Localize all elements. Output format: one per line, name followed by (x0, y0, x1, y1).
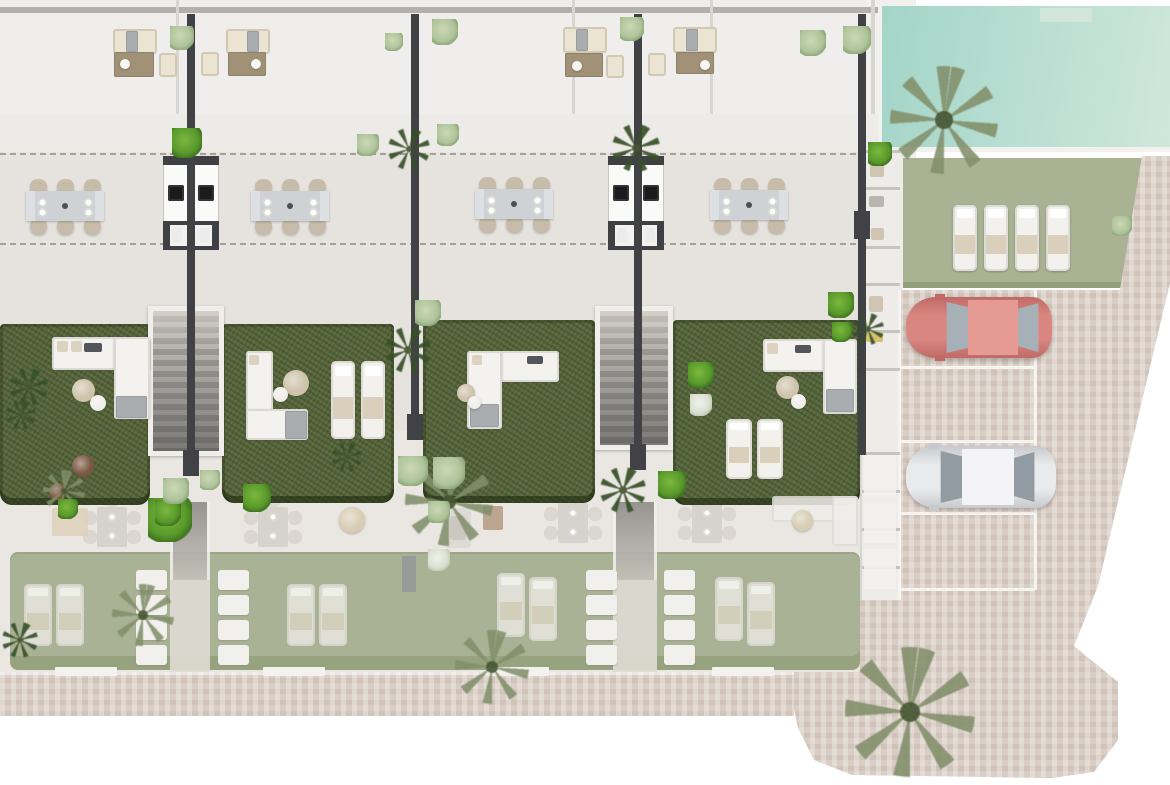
sink (645, 228, 655, 242)
planter-step (218, 595, 249, 615)
planter-step (586, 645, 617, 665)
ghost-chair (127, 511, 141, 525)
ghost-plate (703, 528, 711, 536)
roof-plate (251, 59, 261, 69)
garden-staircase (148, 306, 224, 456)
plate (309, 208, 318, 217)
bush (688, 362, 714, 388)
palm-tree (112, 584, 174, 646)
roof-throw (126, 31, 138, 52)
flowering-bush (428, 549, 450, 571)
ghost-chair (588, 507, 602, 521)
roof-coffee-table (565, 53, 603, 77)
sink (617, 228, 627, 242)
planter-step (664, 570, 695, 590)
sun-lounger (1015, 205, 1039, 271)
patio-divider (862, 187, 900, 190)
tree (1112, 216, 1132, 236)
plate (38, 208, 47, 217)
palm-tree (388, 128, 430, 170)
patio-divider (862, 368, 900, 371)
cooktop (643, 185, 659, 201)
tree (163, 478, 189, 504)
sun-lounger (747, 582, 775, 646)
plate (263, 198, 272, 207)
ghost-ghost-box (864, 503, 896, 543)
sofa-pillow (249, 355, 259, 365)
flowering-bush (690, 394, 712, 416)
patio-divider (862, 283, 900, 286)
tree (433, 457, 465, 489)
ghost-chair (127, 530, 141, 544)
lower-path (170, 580, 210, 672)
serving-bowl (62, 203, 68, 209)
tree (432, 19, 458, 45)
plate (84, 208, 93, 217)
palm-tree (385, 327, 431, 373)
car-windshield (942, 302, 968, 353)
palm-tree (845, 647, 975, 777)
patio-furniture (869, 196, 884, 207)
bush (658, 471, 686, 499)
sink (200, 228, 210, 242)
ghost-chair (678, 507, 692, 521)
bush (58, 499, 78, 519)
tree (800, 30, 826, 56)
roof-armchair (201, 52, 219, 76)
sofa-decor (795, 345, 811, 353)
sofa-blanket (826, 389, 854, 412)
ghost-chair (244, 511, 258, 525)
roof-plate (700, 60, 710, 70)
sofa-decor (84, 343, 102, 352)
ghost-chair (544, 526, 558, 540)
ghost-chair (588, 526, 602, 540)
serving-bowl (287, 203, 293, 209)
tree (428, 501, 450, 523)
sofa-blanket (116, 396, 147, 418)
parking-space-line (901, 366, 1034, 369)
car-windshield (936, 451, 962, 503)
cooktop (168, 185, 184, 201)
palm-tree (455, 630, 529, 704)
palm-tree (332, 442, 362, 472)
door-threshold (712, 667, 774, 676)
car-mirror (935, 294, 945, 300)
car-mirror (929, 505, 939, 511)
sun-lounger (726, 419, 752, 479)
pouf-white (273, 387, 288, 402)
ghost-plate (269, 532, 277, 540)
sun-lounger (287, 584, 315, 646)
sofa-pillow (767, 343, 778, 354)
ghost-plate (108, 513, 116, 521)
patio-divider (862, 246, 900, 249)
door-threshold (263, 667, 325, 676)
car-mirror (929, 443, 939, 449)
tree (843, 26, 871, 54)
bush (828, 292, 854, 318)
ghost-plate (569, 528, 577, 536)
terrace-dashed-line (0, 243, 856, 245)
sun-lounger (319, 584, 347, 646)
sofa-blanket (285, 411, 307, 439)
roof-plate (572, 61, 582, 71)
planter-step (664, 620, 695, 640)
planter-step (586, 595, 617, 615)
pouf-white (90, 395, 106, 411)
roof-plate (120, 59, 130, 69)
parking-space-line (898, 290, 901, 600)
planter-step (664, 595, 695, 615)
ghost-pouf (792, 510, 813, 531)
car-mirror (935, 355, 945, 361)
plate (309, 198, 318, 207)
cooktop (613, 185, 629, 201)
plate (84, 198, 93, 207)
palm-tree (890, 66, 998, 174)
plate (768, 197, 777, 206)
car-roof (962, 449, 1014, 505)
tree (170, 26, 194, 50)
ghost-plate (569, 509, 577, 517)
tree (437, 124, 459, 146)
ghost-chair (678, 526, 692, 540)
wall-cap (183, 450, 199, 476)
tree (415, 300, 441, 326)
tree (357, 134, 379, 156)
bush (832, 322, 852, 342)
sun-lounger (1046, 205, 1070, 271)
ghost-ghost-box (864, 455, 896, 497)
planter-step (218, 570, 249, 590)
plate (263, 208, 272, 217)
tree (200, 470, 220, 490)
bush (172, 128, 202, 158)
sun-lounger (331, 361, 355, 439)
ghost-plate (108, 532, 116, 540)
bush (868, 142, 892, 166)
serving-bowl (746, 202, 752, 208)
ghost-chair (544, 507, 558, 521)
ghost-ghost-wall (402, 556, 416, 592)
sun-lounger (757, 419, 783, 479)
serving-bowl (511, 201, 517, 207)
ghost-chair (244, 530, 258, 544)
sofa-pillow (71, 341, 82, 352)
sun-lounger (984, 205, 1008, 271)
pouf-white (468, 396, 481, 409)
palm-tree (600, 467, 646, 513)
roof-armchair (159, 53, 177, 77)
sun-lounger (715, 577, 743, 641)
ghost-chair (722, 526, 736, 540)
bush (243, 484, 271, 512)
red-car (906, 297, 1052, 358)
patio-furniture (871, 228, 884, 240)
car-rear-window (1014, 452, 1038, 502)
lower-path (613, 580, 657, 672)
partition-wall (187, 14, 195, 460)
ghost-sofa (832, 496, 858, 546)
sun-lounger (497, 573, 525, 637)
patio-furniture (869, 296, 883, 312)
tree (385, 33, 403, 51)
plate (487, 206, 496, 215)
car-rear-window (1018, 303, 1042, 352)
planter-step (136, 645, 167, 665)
sink (172, 228, 182, 242)
planter-step (218, 645, 249, 665)
planter-step (586, 620, 617, 640)
ghost-plate (269, 513, 277, 521)
palm-tree (612, 124, 660, 172)
plate (768, 207, 777, 216)
tree (620, 17, 644, 41)
door-threshold (55, 667, 117, 676)
walkway (0, 672, 794, 716)
parking-space-line (901, 588, 1034, 591)
parking-space-line (901, 440, 1034, 443)
partition-wall (634, 14, 642, 452)
site-plan (0, 0, 1170, 785)
roof-throw (686, 29, 698, 51)
ghost-ghost-box (864, 549, 896, 589)
plate (487, 196, 496, 205)
sun-lounger (56, 584, 84, 646)
plate (533, 206, 542, 215)
wall-cap (630, 444, 646, 470)
lower-staircase (613, 502, 657, 580)
wall-cap (854, 211, 870, 239)
roof-armchair (606, 55, 624, 78)
plate (722, 207, 731, 216)
wall-cap (407, 414, 423, 440)
roof-throw (576, 29, 588, 51)
sofa-pillow (57, 341, 68, 352)
ghost-chair (288, 511, 302, 525)
car-roof (968, 300, 1018, 355)
sun-lounger (953, 205, 977, 271)
sun-lounger (361, 361, 385, 439)
tree (398, 456, 428, 486)
palm-tree (2, 622, 38, 658)
planter-step (664, 645, 695, 665)
planter-step (218, 620, 249, 640)
roof-armchair (648, 53, 666, 76)
plate (722, 197, 731, 206)
roof-divider (871, 0, 875, 114)
white-car (906, 446, 1056, 508)
parking-space-line (901, 512, 1034, 515)
cooktop (198, 185, 214, 201)
sofa-pillow (472, 355, 482, 365)
plate (533, 196, 542, 205)
ghost-plate (703, 509, 711, 517)
perimeter-wall-top (0, 7, 878, 13)
pouf-white (791, 394, 806, 409)
ghost-chair (288, 530, 302, 544)
ghost-pouf (339, 507, 365, 533)
roof-throw (247, 31, 259, 52)
sofa-decor (527, 356, 543, 364)
planter-step (586, 570, 617, 590)
sun-lounger (529, 577, 557, 641)
plate (38, 198, 47, 207)
pool-steps (1040, 8, 1092, 22)
ghost-chair (722, 507, 736, 521)
palm-tree (6, 400, 36, 430)
palm-tree (852, 313, 884, 345)
